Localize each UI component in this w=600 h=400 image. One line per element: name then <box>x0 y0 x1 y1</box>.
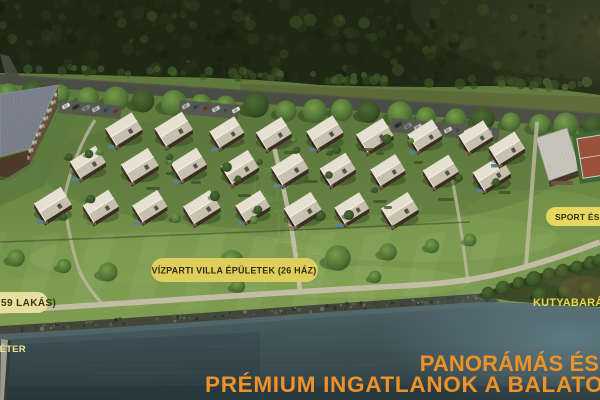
svg-text:KUTYABARÁT STRAND: KUTYABARÁT STRAND <box>533 296 600 309</box>
svg-text:59 LAKÁS): 59 LAKÁS) <box>1 296 56 309</box>
svg-text:PRÉMIUM INGATLANOK A BALATON: PRÉMIUM INGATLANOK A BALATON <box>205 372 600 397</box>
svg-text:VÍZPARTI VILLA ÉPÜLETEK (26 HÁ: VÍZPARTI VILLA ÉPÜLETEK (26 HÁZ) <box>152 266 317 276</box>
svg-text:MÉTER: MÉTER <box>0 344 26 355</box>
svg-text:SPORT ÉS REKREÁCIÓ: SPORT ÉS REKREÁCIÓ <box>555 211 600 222</box>
